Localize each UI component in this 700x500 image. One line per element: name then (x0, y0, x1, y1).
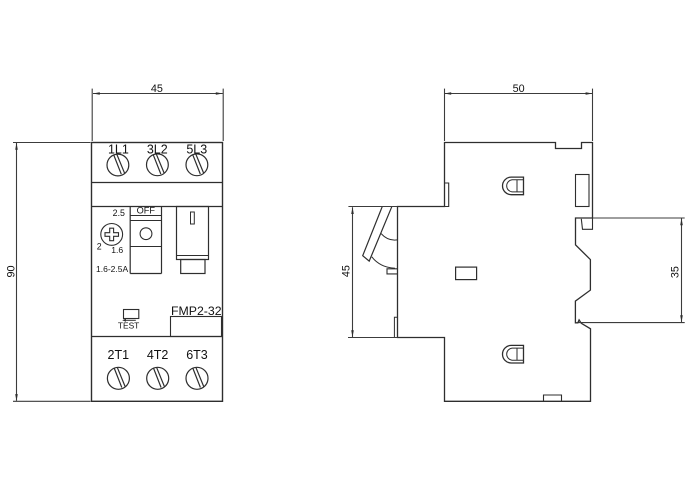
svg-text:6T3: 6T3 (186, 348, 208, 362)
svg-text:50: 50 (513, 83, 525, 95)
svg-text:5L3: 5L3 (186, 142, 207, 156)
svg-text:45: 45 (340, 265, 352, 277)
svg-text:2T1: 2T1 (108, 348, 130, 362)
svg-text:3L2: 3L2 (147, 142, 168, 156)
svg-text:4T2: 4T2 (147, 348, 169, 362)
svg-text:2: 2 (97, 242, 102, 252)
svg-text:90: 90 (6, 265, 18, 277)
svg-text:45: 45 (151, 83, 163, 95)
svg-text:OFF: OFF (137, 206, 156, 216)
svg-text:2.5: 2.5 (113, 208, 125, 218)
svg-text:1L1: 1L1 (108, 142, 129, 156)
svg-text:TEST: TEST (118, 320, 139, 330)
svg-text:1.6-2.5A: 1.6-2.5A (96, 264, 128, 274)
svg-text:FMP2-32: FMP2-32 (171, 304, 222, 318)
svg-text:35: 35 (669, 266, 681, 278)
svg-text:1.6: 1.6 (111, 245, 123, 255)
